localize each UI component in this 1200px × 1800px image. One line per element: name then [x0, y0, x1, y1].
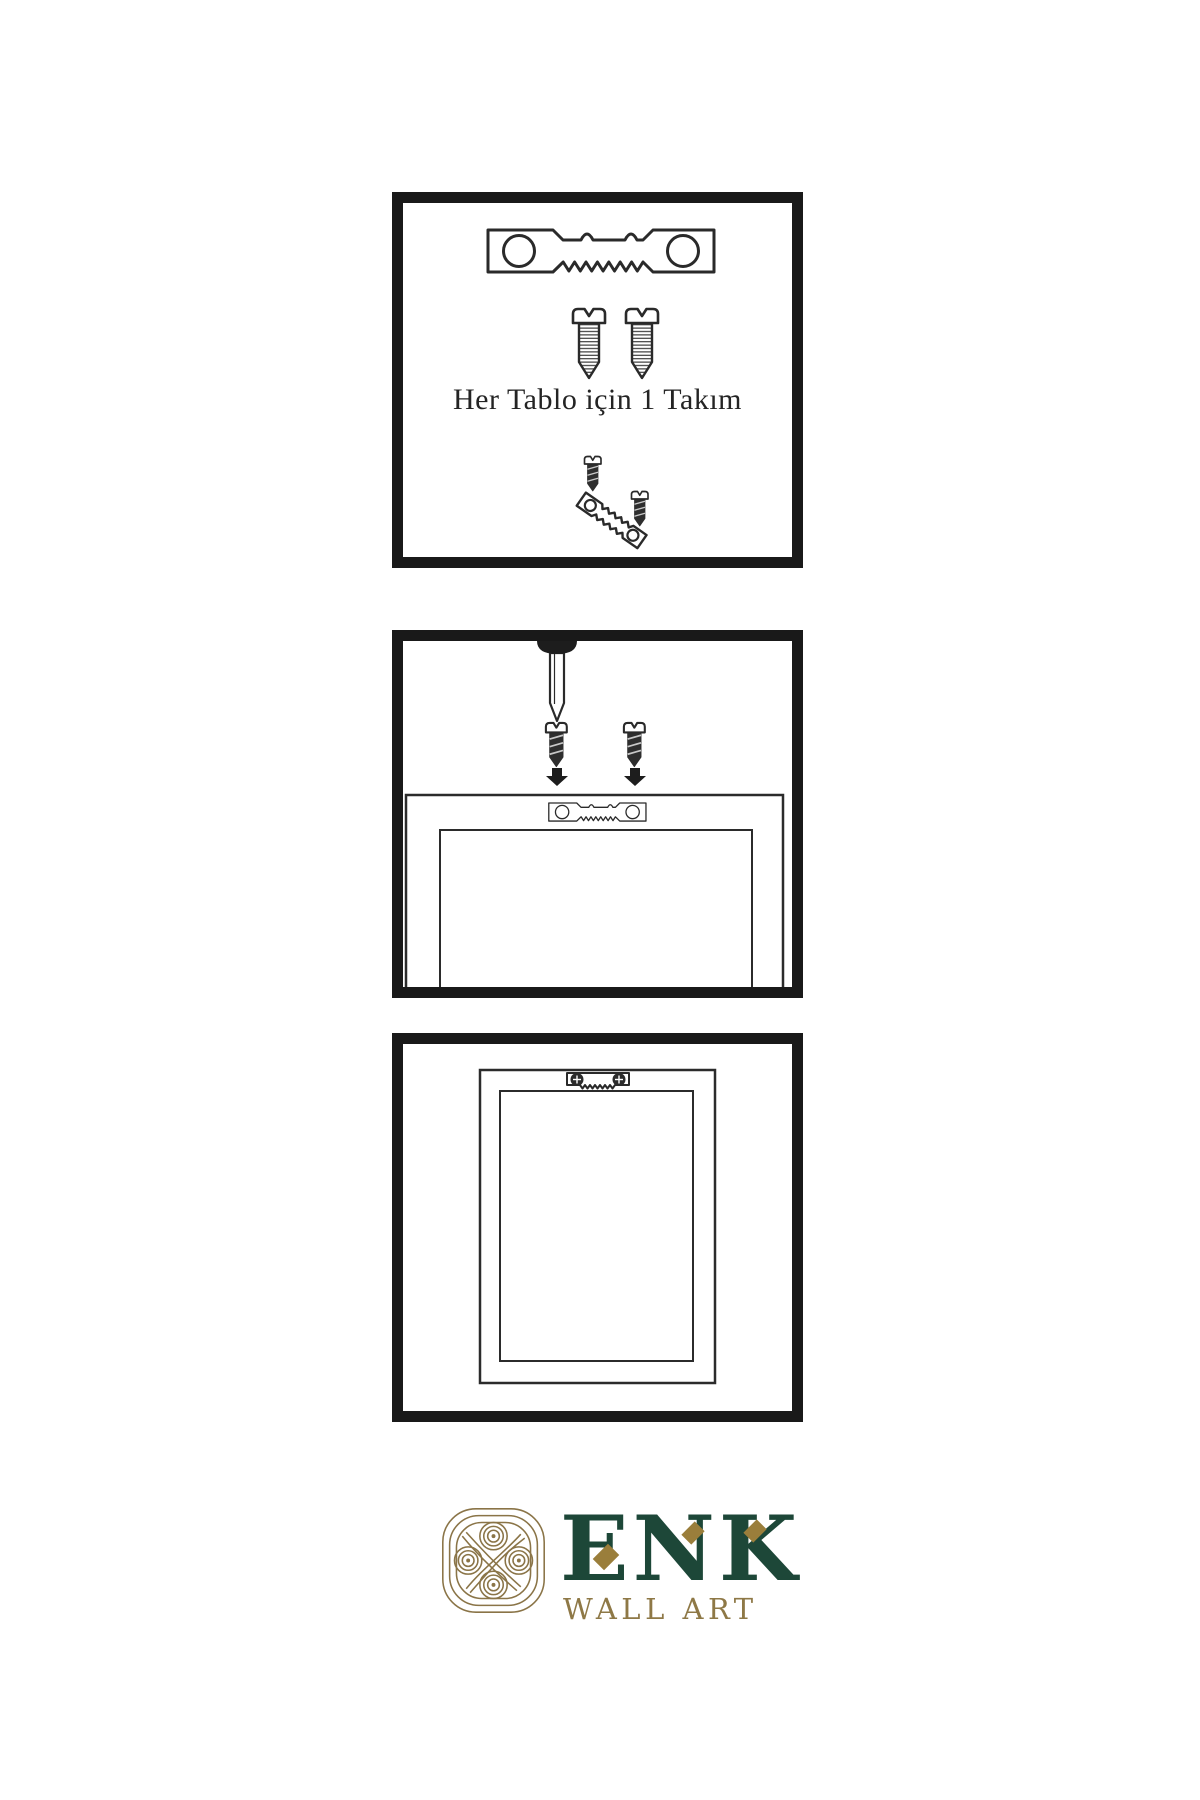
- small-screw-icon: [632, 492, 649, 527]
- brand-tagline: WALL ART: [563, 1594, 758, 1624]
- small-screw-icon: [546, 723, 567, 767]
- panel-hung-frame: [392, 1033, 803, 1422]
- down-arrow-icon: [546, 768, 568, 786]
- hardware-kit-drawing: [403, 203, 792, 557]
- hung-frame-drawing: [403, 1044, 792, 1411]
- screw-icon: [573, 309, 605, 378]
- panel-hardware-kit: Her Tablo için 1 Takım: [392, 192, 803, 568]
- screw-icon: [626, 309, 658, 378]
- instruction-sheet: { "colors": { "background": "#ffffff", "…: [0, 0, 1200, 1800]
- kit-caption: Her Tablo için 1 Takım: [403, 383, 792, 417]
- mounting-step-drawing: [403, 641, 792, 987]
- panel-mounting-step: [392, 630, 803, 998]
- frame-inner: [500, 1091, 693, 1361]
- down-arrow-icon: [624, 768, 646, 786]
- sawtooth-hanger-icon: [488, 230, 714, 272]
- wall-nail-icon: [537, 641, 577, 721]
- frame-back-inner: [440, 830, 752, 987]
- small-screw-icon: [624, 723, 645, 767]
- brand-name: ENK: [560, 1504, 801, 1594]
- knot-logo-icon: [435, 1495, 552, 1626]
- small-screw-icon: [585, 457, 602, 492]
